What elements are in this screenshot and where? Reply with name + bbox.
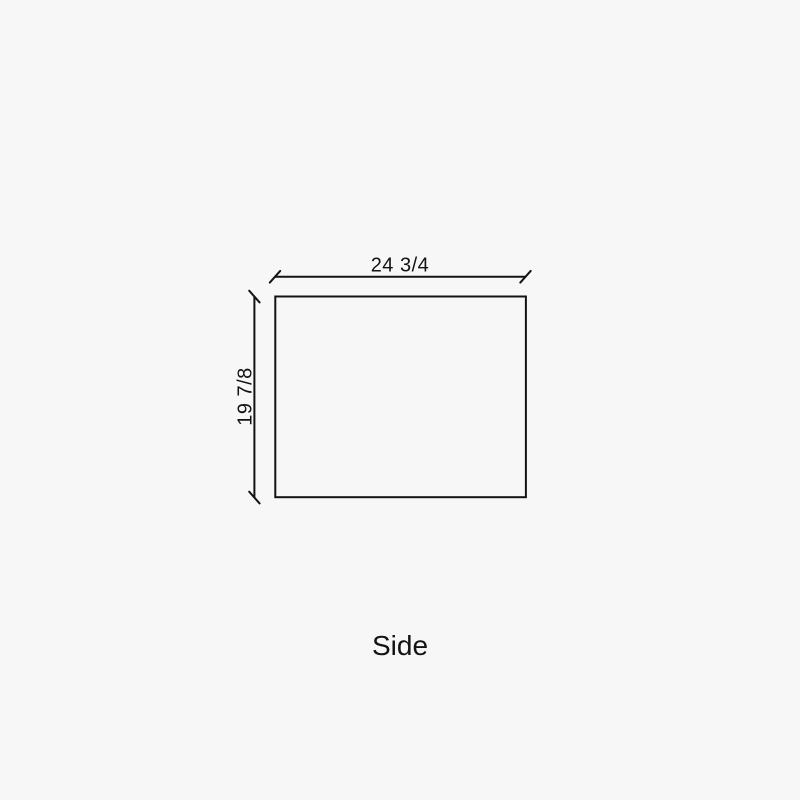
svg-text:19 7/8: 19 7/8 (235, 367, 257, 426)
svg-text:Side: Side (372, 630, 428, 661)
svg-text:24 3/4: 24 3/4 (371, 255, 430, 277)
